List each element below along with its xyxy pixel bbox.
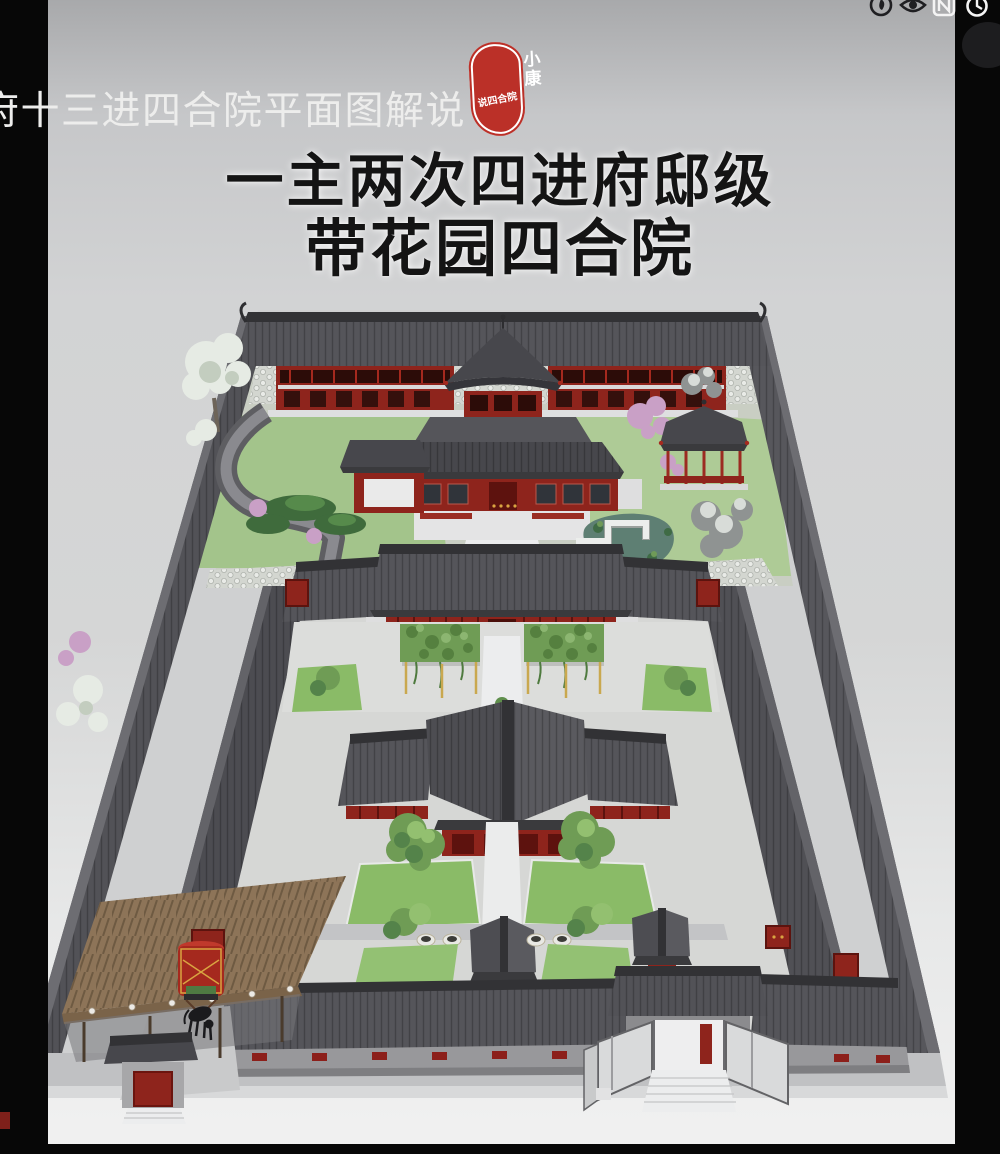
seal-text-bottom: 说四合院 xyxy=(476,90,520,111)
edge-red-fragment xyxy=(0,1112,10,1129)
status-bar xyxy=(0,0,1000,25)
video-frame: 府十三进四合院平面图解说 小康 说四合院 一主两次四进府邸级 带花园四合院 xyxy=(0,0,1000,1154)
channel-seal: 小康 说四合院 xyxy=(468,41,527,138)
eye-protect-icon[interactable] xyxy=(897,0,929,23)
bottom-letterbox xyxy=(0,1144,1000,1154)
record-circle-icon[interactable] xyxy=(866,0,896,23)
siheyuan-3d-model xyxy=(0,270,955,1154)
title-line-2: 带花园四合院 xyxy=(0,215,1000,284)
overhanging-bushes xyxy=(56,631,108,732)
floating-window-icon[interactable] xyxy=(929,0,959,23)
left-pillarbox xyxy=(0,0,48,1154)
seal-text-top: 小康 xyxy=(486,50,542,91)
pergola-courtyard xyxy=(282,622,720,712)
right-pillarbox xyxy=(955,0,1000,1154)
video-caption: 府十三进四合院平面图解说 xyxy=(0,80,466,136)
alarm-clock-icon[interactable] xyxy=(961,0,993,23)
main-gate xyxy=(584,966,788,1112)
main-title: 一主两次四进府邸级 带花园四合院 xyxy=(0,150,1000,284)
front-row-building xyxy=(213,974,910,1077)
title-line-1: 一主两次四进府邸级 xyxy=(0,150,1000,215)
